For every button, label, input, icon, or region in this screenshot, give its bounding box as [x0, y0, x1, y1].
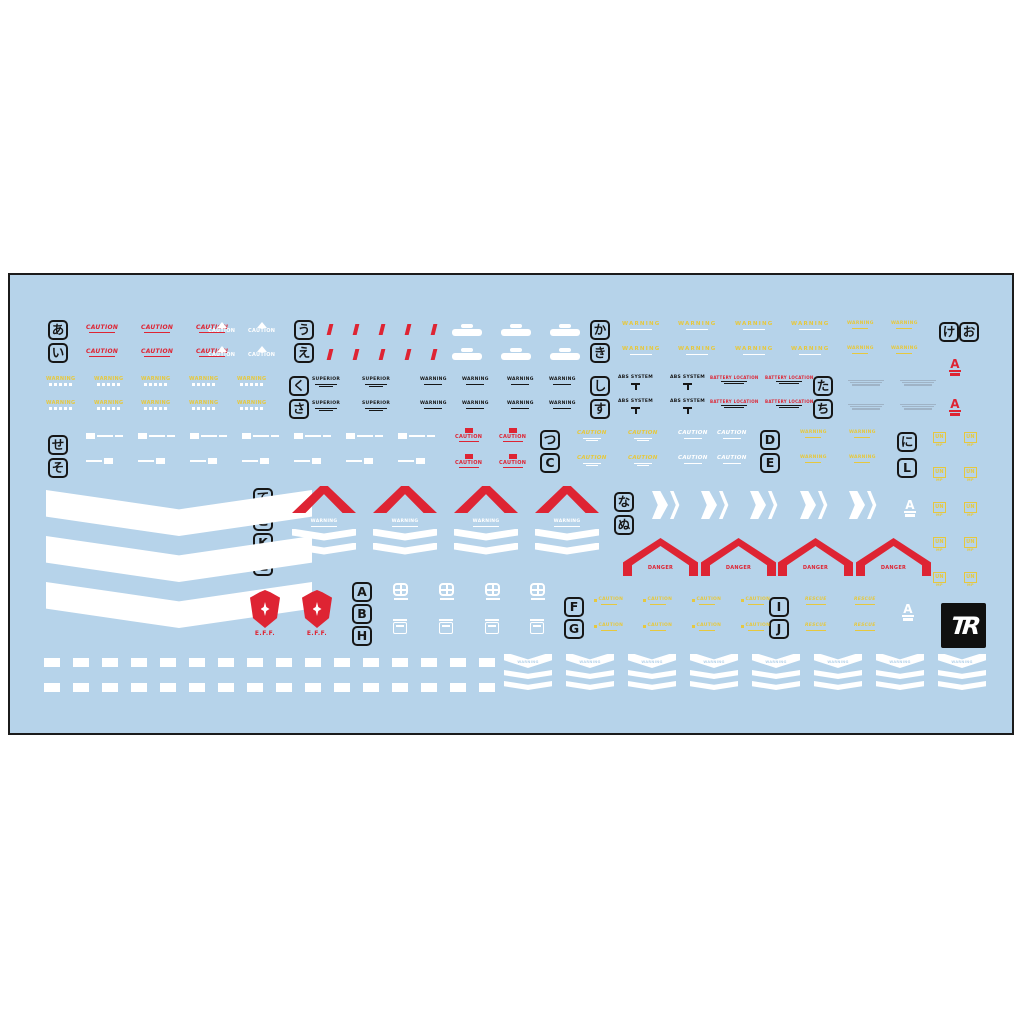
- yellow-caution-mini: CAUTION: [643, 598, 672, 605]
- decal-text: BATTERY LOCATION: [765, 376, 814, 380]
- decal-text: WARNING: [189, 401, 218, 406]
- arrow-thick-icon: [701, 491, 717, 519]
- decal-line: [748, 630, 764, 631]
- chevron-band: [566, 670, 614, 679]
- chevron-band: WARNING: [752, 654, 800, 668]
- decal-line: [394, 598, 408, 600]
- white-warning-chevron-small: WARNING: [504, 654, 552, 690]
- chevron-band: [938, 670, 986, 679]
- chevron-band: WARNING: [504, 654, 552, 668]
- logo-top: [461, 348, 473, 352]
- white-warning-chevron-small: WARNING: [566, 654, 614, 690]
- decal-line: [776, 381, 802, 382]
- logo-base: [452, 329, 482, 336]
- red-caution-text: CAUTION: [141, 325, 173, 333]
- decal-text: MP: [936, 584, 943, 588]
- decal-text: CAUTION: [86, 349, 118, 355]
- bar-row: [242, 433, 279, 439]
- decal-text: CAUTION: [746, 624, 771, 629]
- yellow-warning-small: WARNING: [849, 456, 876, 463]
- chevron-band: WARNING: [690, 654, 738, 668]
- grey-fineprint: [900, 380, 936, 386]
- decal-text: WARNING: [847, 347, 874, 352]
- decal-line: [855, 630, 875, 631]
- red-box: [465, 428, 473, 433]
- decal-line: [635, 385, 637, 390]
- decal-text: MP: [967, 514, 974, 518]
- decal-line: [393, 619, 407, 621]
- grid-line: [441, 589, 452, 591]
- decal-text: UN: [966, 540, 975, 545]
- index-marker: C: [540, 453, 560, 473]
- decal-text: MP: [967, 444, 974, 448]
- decal-text: CAUTION: [499, 435, 526, 440]
- decal-text: ABS SYSTEM: [618, 400, 653, 405]
- decal-text: CAUTION: [248, 353, 275, 358]
- decal-text: WARNING: [891, 347, 918, 352]
- mini-row: CAUTION: [594, 624, 623, 629]
- red-slash-mark: [379, 324, 386, 335]
- index-marker: す: [590, 399, 610, 419]
- red-slash-mark: [379, 349, 386, 360]
- un-emblem-yellow: UNMP: [933, 572, 946, 588]
- battery-location-text: BATTERY LOCATION: [765, 400, 814, 408]
- index-marker: た: [813, 376, 833, 396]
- yellow-warning-small: WARNING: [847, 322, 874, 329]
- decal-line: [89, 356, 115, 357]
- white-dash: [102, 683, 118, 692]
- white-dash: [392, 658, 408, 667]
- bar-row: [242, 458, 269, 464]
- yellow-warning-wide: WARNING: [791, 322, 829, 330]
- logo-base: [550, 329, 580, 336]
- yellow-warning-wave: WARNING: [141, 401, 170, 410]
- a-emblem-red: A: [949, 358, 961, 376]
- decal-text: WARNING: [311, 520, 338, 525]
- bar-block: [86, 433, 95, 439]
- white-dash: [305, 658, 321, 667]
- decal-line: [439, 619, 453, 621]
- logo-top: [559, 324, 571, 328]
- decal-line: [240, 383, 264, 386]
- bar-block: [346, 433, 355, 439]
- red-caution-text: CAUTION: [86, 349, 118, 357]
- white-bar: [138, 433, 175, 439]
- decal-text: WARNING: [504, 661, 552, 665]
- bar-line: [201, 435, 217, 437]
- bar-block: [156, 458, 165, 464]
- decal-line: [601, 630, 617, 631]
- decal-line: [311, 526, 337, 527]
- white-warning-chevron-small: WARNING: [752, 654, 800, 690]
- black-superior-text: SUPERIOR: [362, 402, 390, 411]
- white-bar: [398, 458, 425, 464]
- abs-system-text: ABS SYSTEM: [618, 400, 653, 414]
- box-dash: [533, 625, 541, 627]
- decal-line: [315, 384, 337, 385]
- decal-text: ABS SYSTEM: [670, 376, 705, 381]
- decal-line: [553, 384, 571, 385]
- large-white-chevron: [46, 490, 312, 536]
- bar-block: [260, 458, 269, 464]
- yellow-caution: CAUTION: [628, 431, 658, 441]
- white-logo: [501, 348, 531, 360]
- decal-line: [900, 404, 936, 405]
- decal-text: WARNING: [876, 661, 924, 665]
- decal-line: [848, 380, 884, 381]
- index-marker: ぬ: [614, 515, 634, 535]
- yellow-caution: CAUTION: [577, 431, 607, 441]
- a-emblem-red: A: [949, 398, 961, 416]
- decal-text: BATTERY LOCATION: [710, 376, 759, 380]
- white-dash: [276, 658, 292, 667]
- index-marker: G: [564, 619, 584, 639]
- decal-text: WARNING: [622, 347, 660, 353]
- arrow-thick-icon: [800, 491, 816, 519]
- white-bar: [190, 458, 217, 464]
- white-caution-plain: CAUTION: [717, 456, 747, 464]
- white-dash: [218, 658, 234, 667]
- decal-text: WARNING: [938, 661, 986, 665]
- decal-line: [721, 381, 747, 382]
- house-inner: [632, 546, 689, 576]
- black-warning-text: WARNING: [420, 378, 447, 385]
- decal-line: [805, 437, 821, 438]
- decal-line: [721, 405, 747, 406]
- white-dash: [334, 658, 350, 667]
- decal-text: WARNING: [141, 401, 170, 406]
- yellow-warning-wave: WARNING: [189, 377, 218, 386]
- decal-text: WARNING: [849, 456, 876, 461]
- decal-text: CAUTION: [208, 353, 235, 358]
- mini-square: [692, 599, 695, 602]
- mini-square: [692, 625, 695, 628]
- chevron-band: [628, 670, 676, 679]
- decal-text: WARNING: [891, 322, 918, 327]
- box-dash: [396, 625, 404, 627]
- decal-text: CAUTION: [599, 624, 624, 629]
- bar-row: [138, 433, 175, 439]
- white-bar: [138, 458, 165, 464]
- red-slash-mark: [327, 324, 334, 335]
- decal-line: [144, 356, 170, 357]
- chevron-band: [535, 543, 599, 555]
- white-caution-plain: CAUTION: [678, 456, 708, 464]
- decal-text: UN: [966, 505, 975, 510]
- mini-square: [643, 599, 646, 602]
- white-logo: [501, 324, 531, 336]
- decal-line: [635, 409, 637, 414]
- decal-line: [586, 440, 598, 441]
- white-double-arrow: [652, 491, 682, 519]
- un-emblem-yellow: UNMP: [933, 502, 946, 518]
- bar-block: [104, 458, 113, 464]
- bar-line: [294, 460, 310, 462]
- decal-text: SUPERIOR: [362, 402, 390, 407]
- un-emblem-icon: UN: [933, 572, 946, 583]
- decal-text: MP: [967, 584, 974, 588]
- yellow-rescue-text: RESCUE: [805, 624, 827, 631]
- white-warning-chevron-small: WARNING: [938, 654, 986, 690]
- decal-line: [369, 410, 383, 411]
- yellow-warning-wide: WARNING: [678, 347, 716, 355]
- mini-square: [741, 599, 744, 602]
- white-double-arrow: [750, 491, 780, 519]
- decal-text: CAUTION: [717, 431, 747, 437]
- chevron-band: [814, 681, 862, 690]
- box-emblem-icon: [393, 622, 407, 634]
- decal-text: WARNING: [237, 377, 266, 382]
- red-slash-mark: [353, 324, 360, 335]
- un-emblem-yellow: UNMP: [933, 467, 946, 483]
- black-warning-text: WARNING: [462, 378, 489, 385]
- decal-text: A: [950, 398, 960, 410]
- decal-text: UN: [966, 435, 975, 440]
- white-bar: [294, 433, 331, 439]
- red-slash-mark: [327, 349, 334, 360]
- un-emblem-icon: UN: [933, 502, 946, 513]
- decal-line: [424, 408, 442, 409]
- white-grid-emblem: [439, 583, 454, 600]
- decal-text: CAUTION: [628, 456, 658, 462]
- decal-text: WARNING: [678, 322, 716, 328]
- decal-line: [553, 408, 571, 409]
- box-dash: [442, 625, 450, 627]
- decal-line: [724, 383, 744, 384]
- arrow-row: [652, 491, 682, 519]
- decal-line: [473, 526, 499, 527]
- yellow-warning-small: WARNING: [849, 431, 876, 438]
- white-caution-triangle: CAUTION: [248, 322, 275, 334]
- box-emblem-icon: [485, 622, 499, 634]
- red-chevron: [373, 486, 437, 513]
- decal-text: CAUTION: [678, 431, 708, 437]
- bar-block: [398, 433, 407, 439]
- decal-text: RESCUE: [805, 624, 827, 629]
- decal-line: [852, 384, 880, 385]
- bar-line: [375, 435, 383, 437]
- mini-square: [741, 625, 744, 628]
- red-caution-box: CAUTION: [499, 454, 526, 468]
- battery-location-text: BATTERY LOCATION: [710, 400, 759, 408]
- decal-text: CAUTION: [141, 325, 173, 331]
- chevron-band: WARNING: [814, 654, 862, 668]
- yellow-warning-wide: WARNING: [735, 322, 773, 330]
- grey-fineprint: [900, 404, 936, 410]
- yellow-warning-wide: WARNING: [678, 322, 716, 330]
- index-marker: あ: [48, 320, 68, 340]
- yellow-rescue-text: RESCUE: [854, 624, 876, 631]
- bar-row: [398, 458, 425, 464]
- decal-text: DANGER: [701, 566, 776, 571]
- index-marker: H: [352, 626, 372, 646]
- bar-row: [190, 458, 217, 464]
- yellow-warning-wide: WARNING: [622, 322, 660, 330]
- abs-system-text: ABS SYSTEM: [618, 376, 653, 390]
- chevron-band: WARNING: [628, 654, 676, 668]
- decal-text: BATTERY LOCATION: [710, 400, 759, 404]
- decal-text: CAUTION: [678, 456, 708, 462]
- mini-row: CAUTION: [692, 598, 721, 603]
- decal-line: [315, 408, 337, 409]
- white-logo: [452, 324, 482, 336]
- un-emblem-yellow: UNMP: [964, 467, 977, 483]
- decal-line: [634, 463, 652, 464]
- yellow-warning-wave: WARNING: [189, 401, 218, 410]
- index-marker: け: [939, 322, 959, 342]
- un-emblem-icon: UN: [964, 502, 977, 513]
- white-dash: [131, 683, 147, 692]
- decal-line: [459, 467, 479, 468]
- decal-line: [466, 408, 484, 409]
- decal-text: ABS SYSTEM: [618, 376, 653, 381]
- mini-square: [594, 625, 597, 628]
- decal-line: [586, 465, 598, 466]
- decal-line: [743, 354, 765, 356]
- decal-line: [905, 514, 915, 517]
- yellow-caution-mini: CAUTION: [594, 598, 623, 605]
- bar-line: [190, 460, 206, 462]
- tr-brand-logo: TR: [941, 603, 986, 648]
- decal-text: UN: [966, 470, 975, 475]
- white-logo: [550, 348, 580, 360]
- decal-line: [97, 383, 121, 386]
- bar-line: [357, 435, 373, 437]
- decal-line: [902, 615, 914, 617]
- chevron-band: [752, 670, 800, 679]
- decal-text: CAUTION: [248, 329, 275, 334]
- white-dash: [363, 683, 379, 692]
- arrow-thick-icon: [652, 491, 668, 519]
- chevron-band: WARNING: [938, 654, 986, 668]
- decal-line: [392, 526, 418, 527]
- house-inner: [787, 546, 844, 576]
- decal-text: WARNING: [849, 431, 876, 436]
- mini-row: CAUTION: [643, 624, 672, 629]
- white-dash: [189, 658, 205, 667]
- decal-line: [900, 380, 936, 381]
- battery-location-text: BATTERY LOCATION: [710, 376, 759, 384]
- decal-text: WARNING: [735, 322, 773, 328]
- decal-text: BATTERY LOCATION: [765, 400, 814, 404]
- decal-line: [511, 384, 529, 385]
- decal-line: [904, 384, 932, 385]
- red-box: [509, 428, 517, 433]
- decal-line: [904, 511, 916, 513]
- white-dash: [247, 683, 263, 692]
- decal-line: [724, 407, 744, 408]
- white-dash: [479, 683, 495, 692]
- red-slash-mark: [405, 324, 412, 335]
- eff-shield-icon: [250, 590, 280, 628]
- decal-text: CAUTION: [208, 329, 235, 334]
- red-danger-chevron: DANGER: [856, 538, 931, 576]
- white-dash: [247, 658, 263, 667]
- black-superior-text: SUPERIOR: [312, 378, 340, 387]
- mini-square: [594, 599, 597, 602]
- decal-text: WARNING: [791, 347, 829, 353]
- large-white-chevron: [46, 536, 312, 582]
- un-emblem-icon: UN: [964, 432, 977, 443]
- chevron-band: [876, 670, 924, 679]
- box-emblem-icon: [439, 622, 453, 634]
- decal-line: [686, 329, 708, 331]
- decal-line: [748, 604, 764, 605]
- white-dash: [218, 683, 234, 692]
- chevron-band: WARNING: [566, 654, 614, 668]
- decal-text: CAUTION: [648, 598, 673, 603]
- white-caution-plain: CAUTION: [717, 431, 747, 439]
- decal-line: [466, 384, 484, 385]
- decal-line: [144, 383, 168, 386]
- white-warning-chevron: WARNING: [535, 520, 599, 555]
- white-bar: [294, 458, 321, 464]
- decal-line: [902, 382, 934, 383]
- index-marker: A: [352, 582, 372, 602]
- white-warning-chevron-small: WARNING: [628, 654, 676, 690]
- decal-text: CAUTION: [577, 431, 607, 437]
- decal-text: A: [905, 499, 915, 511]
- decal-line: [799, 329, 821, 331]
- bar-line: [271, 435, 279, 437]
- decal-line: [144, 332, 170, 333]
- index-marker: か: [590, 320, 610, 340]
- un-emblem-yellow: UNMP: [964, 572, 977, 588]
- decal-text: MP: [936, 444, 943, 448]
- star-icon: [313, 602, 322, 616]
- arrow-thin-icon: [768, 491, 780, 519]
- bar-row: [294, 433, 331, 439]
- bar-line: [398, 460, 414, 462]
- decal-text: WARNING: [141, 377, 170, 382]
- white-caution-triangle: CAUTION: [248, 346, 275, 358]
- bar-line: [115, 435, 123, 437]
- index-marker: F: [564, 597, 584, 617]
- decal-text: WARNING: [735, 347, 773, 353]
- black-warning-text: WARNING: [507, 402, 534, 409]
- white-box-emblem: [485, 619, 499, 634]
- decal-text: WARNING: [94, 377, 123, 382]
- bar-line: [409, 435, 425, 437]
- chevron-band: [454, 543, 518, 555]
- decal-line: [583, 463, 601, 464]
- white-dash: [450, 683, 466, 692]
- decal-line: [530, 619, 544, 621]
- decal-line: [687, 409, 689, 414]
- decal-line: [902, 406, 934, 407]
- bar-row: [190, 433, 227, 439]
- grid-emblem-icon: [439, 583, 454, 596]
- decal-line: [319, 410, 333, 411]
- arrow-thin-icon: [867, 491, 879, 519]
- decal-text: WARNING: [628, 661, 676, 665]
- white-bar: [346, 433, 383, 439]
- yellow-caution-mini: CAUTION: [643, 624, 672, 631]
- white-dash: [160, 658, 176, 667]
- black-warning-text: WARNING: [549, 378, 576, 385]
- arrow-row: [849, 491, 879, 519]
- white-warning-chevron-small: WARNING: [876, 654, 924, 690]
- battery-location-text: BATTERY LOCATION: [765, 376, 814, 384]
- yellow-caution: CAUTION: [577, 456, 607, 466]
- decal-line: [319, 386, 333, 387]
- white-dash: [44, 683, 60, 692]
- index-marker: に: [897, 432, 917, 452]
- arrow-thick-icon: [750, 491, 766, 519]
- decal-line: [686, 354, 708, 356]
- white-warning-chevron: WARNING: [373, 520, 437, 555]
- bar-line: [219, 435, 227, 437]
